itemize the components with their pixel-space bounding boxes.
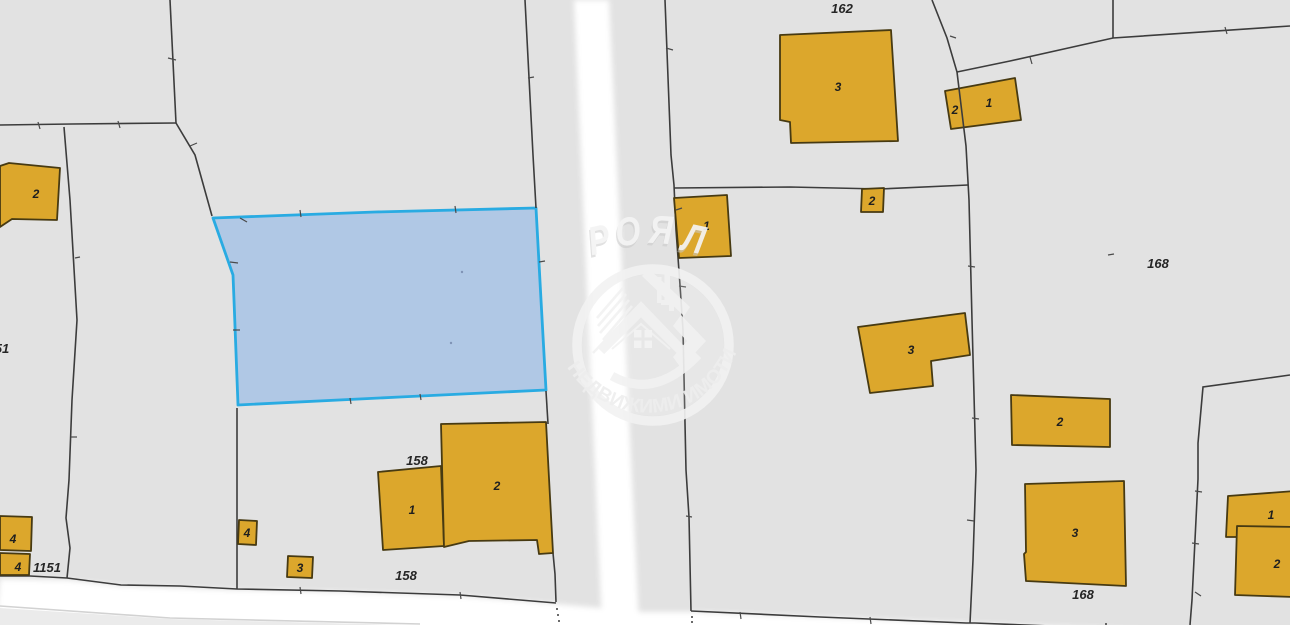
svg-text:2: 2 — [493, 479, 501, 493]
svg-text:3: 3 — [297, 561, 304, 575]
svg-text:158: 158 — [395, 568, 417, 583]
svg-text:2: 2 — [32, 187, 40, 201]
svg-text:Я: Я — [647, 206, 676, 253]
svg-text:158: 158 — [406, 453, 428, 468]
svg-text:1: 1 — [409, 503, 416, 517]
svg-text:2: 2 — [868, 194, 876, 208]
svg-text:1151: 1151 — [33, 560, 61, 575]
svg-text:3: 3 — [1072, 526, 1079, 540]
svg-text:2: 2 — [951, 103, 959, 117]
svg-text:162: 162 — [831, 1, 853, 16]
svg-text:2: 2 — [1056, 415, 1064, 429]
svg-text:3: 3 — [835, 80, 842, 94]
svg-text:51: 51 — [0, 341, 9, 356]
svg-text:1: 1 — [1268, 508, 1275, 522]
svg-text:4: 4 — [243, 526, 251, 540]
svg-text:168: 168 — [1072, 587, 1094, 602]
svg-text:4: 4 — [9, 532, 17, 546]
svg-text:О: О — [613, 208, 642, 255]
svg-text:2: 2 — [1273, 557, 1281, 571]
svg-text:4: 4 — [14, 560, 22, 574]
svg-text:168: 168 — [1147, 256, 1169, 271]
svg-text:1: 1 — [986, 96, 993, 110]
svg-text:3: 3 — [908, 343, 915, 357]
